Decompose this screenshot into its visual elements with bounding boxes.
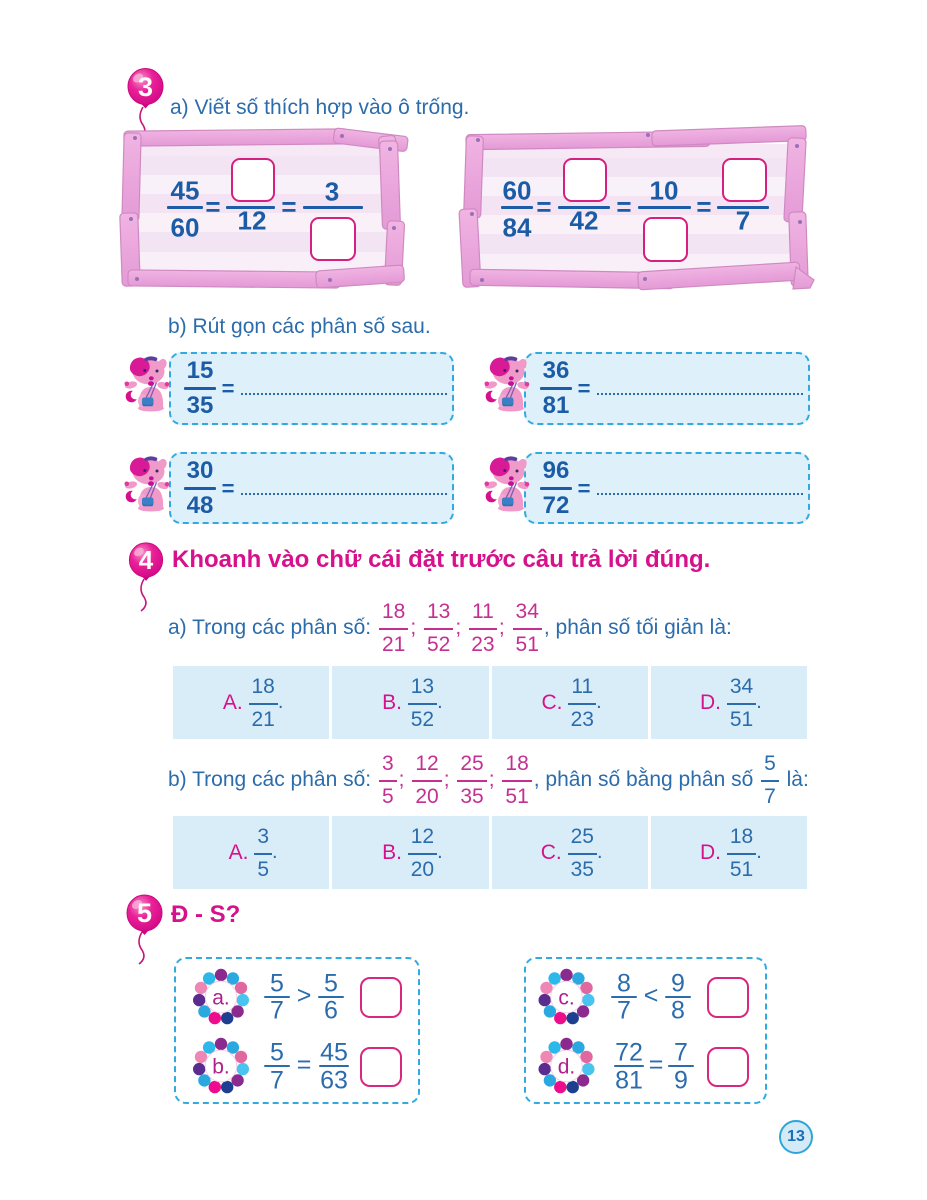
svg-text:4: 4 xyxy=(139,545,154,575)
svg-text:5: 5 xyxy=(137,898,152,928)
svg-text:3: 3 xyxy=(138,72,153,102)
svg-text:c.: c. xyxy=(558,987,574,1010)
svg-text:a.: a. xyxy=(212,987,230,1010)
svg-text:b.: b. xyxy=(212,1056,230,1079)
svg-text:d.: d. xyxy=(558,1056,576,1079)
